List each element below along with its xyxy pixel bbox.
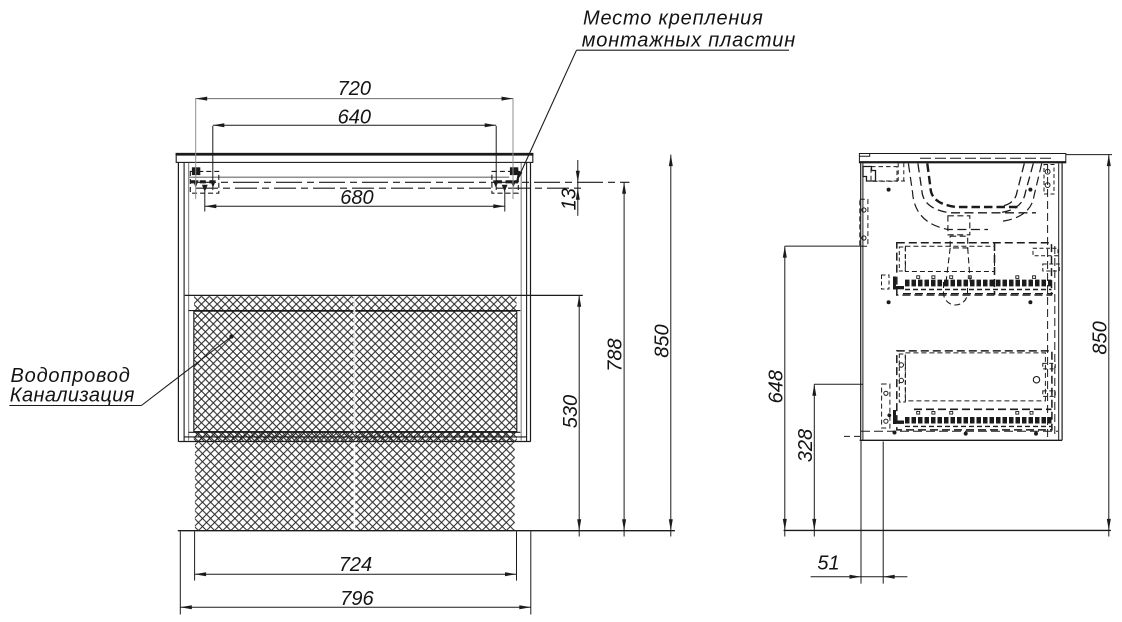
svg-text:Место крепления: Место крепления <box>583 7 764 29</box>
svg-text:724: 724 <box>339 554 372 576</box>
svg-text:648: 648 <box>765 370 787 403</box>
svg-text:530: 530 <box>560 395 582 428</box>
svg-text:328: 328 <box>795 429 817 462</box>
svg-text:788: 788 <box>605 338 627 371</box>
svg-text:796: 796 <box>340 588 374 610</box>
svg-text:850: 850 <box>651 324 673 357</box>
svg-text:51: 51 <box>817 553 839 575</box>
svg-text:640: 640 <box>338 106 371 128</box>
svg-text:Водопровод: Водопровод <box>11 365 131 387</box>
svg-text:Канализация: Канализация <box>10 385 135 407</box>
svg-text:850: 850 <box>1089 321 1111 354</box>
svg-text:13: 13 <box>558 188 580 210</box>
svg-text:720: 720 <box>338 78 371 100</box>
svg-text:монтажных пластин: монтажных пластин <box>582 29 796 51</box>
svg-text:680: 680 <box>340 187 373 209</box>
